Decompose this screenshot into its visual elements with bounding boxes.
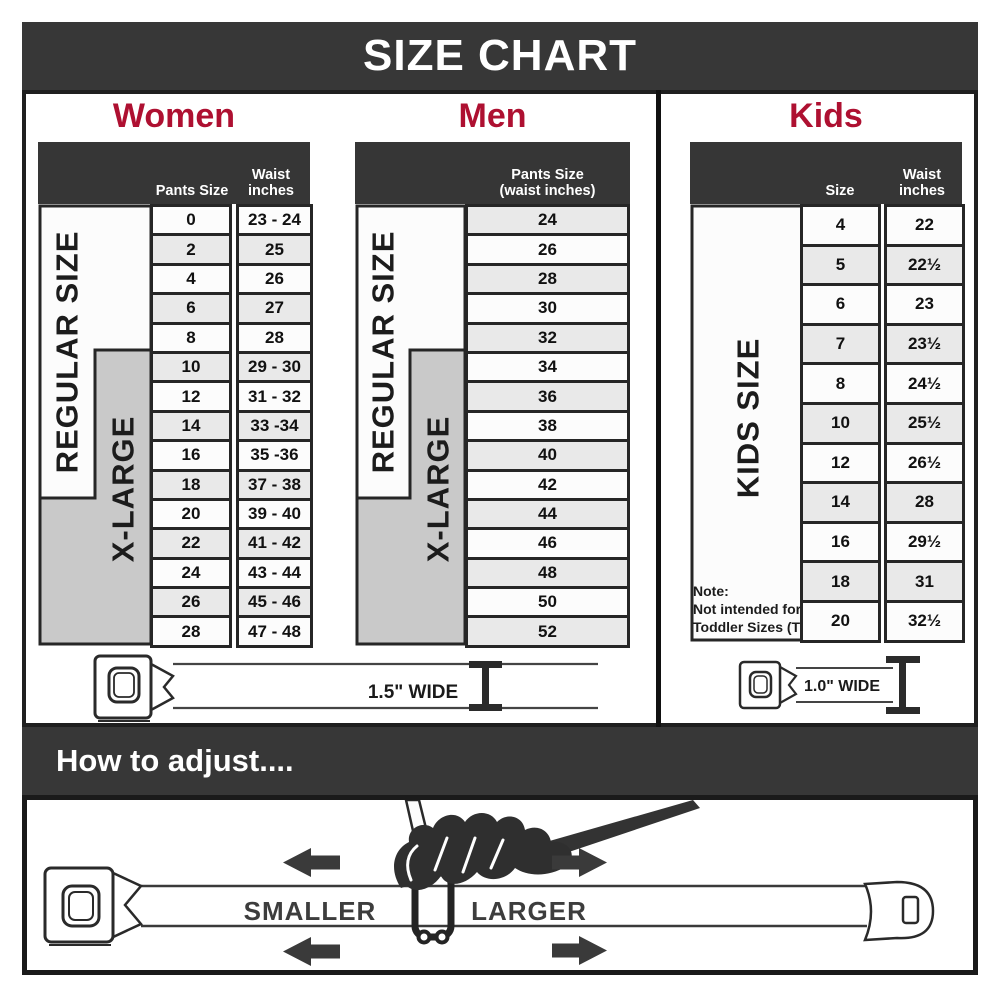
waist-cell: 22 (886, 206, 964, 246)
seatbelt-buckle-icon (45, 868, 141, 945)
left-arrow-icon (283, 848, 340, 877)
table-row: 28 47 - 48 (152, 617, 312, 646)
waist-cell: 25 (238, 235, 312, 264)
size-cell: 5 (802, 245, 880, 285)
size-cell: 18 (802, 562, 880, 602)
belt-tip (865, 882, 933, 940)
waist-cell: 43 - 44 (238, 558, 312, 587)
page-title: SIZE CHART (363, 31, 637, 81)
table-row: 7 23½ (802, 324, 964, 364)
pants-size-cell: 20 (152, 499, 231, 528)
women-regular-label: REGULAR SIZE (50, 231, 85, 474)
pants-size-cell: 46 (467, 529, 629, 558)
pants-size-cell: 0 (152, 206, 231, 235)
men-regular-label: REGULAR SIZE (366, 231, 401, 474)
seatbelt-buckle-icon (95, 656, 173, 721)
pants-size-cell: 12 (152, 382, 231, 411)
right-arrow-icon (552, 936, 607, 965)
column-gap (231, 382, 238, 411)
table-row: 8 28 (152, 323, 312, 352)
waist-cell: 25½ (886, 403, 964, 443)
adult-belt-illustration: 1.5" WIDE (38, 650, 653, 730)
pants-size-cell: 6 (152, 294, 231, 323)
waist-cell: 26 (238, 264, 312, 293)
table-row: 0 23 - 24 (152, 206, 312, 235)
pants-size-cell: 52 (467, 617, 629, 646)
men-table-header: Pants Size (waist inches) (355, 142, 630, 204)
pants-size-cell: 24 (152, 558, 231, 587)
size-cell: 14 (802, 483, 880, 523)
table-row: 12 26½ (802, 443, 964, 483)
men-heading: Men (355, 96, 630, 136)
waist-cell: 22½ (886, 245, 964, 285)
pants-size-cell: 4 (152, 264, 231, 293)
table-row: 44 (467, 499, 629, 528)
waist-cell: 33 -34 (238, 411, 312, 440)
table-row: 18 31 (802, 562, 964, 602)
women-table-header: Pants Size Waist inches (38, 142, 310, 204)
size-cell: 20 (802, 601, 880, 641)
column-gap (231, 470, 238, 499)
table-row: 22 41 - 42 (152, 529, 312, 558)
table-row: 16 35 -36 (152, 441, 312, 470)
width-marker-icon (886, 656, 920, 714)
kids-heading: Kids (690, 96, 962, 136)
waist-cell: 39 - 40 (238, 499, 312, 528)
table-row: 46 (467, 529, 629, 558)
pants-size-cell: 34 (467, 352, 629, 381)
larger-label: LARGER (471, 896, 587, 926)
women-col-waist: Waist inches (234, 167, 308, 199)
table-row: 4 26 (152, 264, 312, 293)
kids-col-size: Size (800, 183, 880, 199)
adult-belt-width-label: 1.5" WIDE (368, 682, 458, 703)
pants-size-cell: 26 (467, 235, 629, 264)
waist-cell: 28 (886, 483, 964, 523)
pants-size-cell: 26 (152, 588, 231, 617)
table-row: 14 33 -34 (152, 411, 312, 440)
size-cell: 12 (802, 443, 880, 483)
table-row: 38 (467, 411, 629, 440)
size-cell: 4 (802, 206, 880, 246)
table-row: 20 32½ (802, 601, 964, 641)
waist-cell: 41 - 42 (238, 529, 312, 558)
table-row: 26 45 - 46 (152, 588, 312, 617)
pants-size-cell: 40 (467, 441, 629, 470)
kids-panel-divider (656, 90, 661, 727)
column-gap (231, 529, 238, 558)
left-arrow-icon (283, 937, 340, 966)
waist-cell: 31 (886, 562, 964, 602)
size-cell: 16 (802, 522, 880, 562)
waist-cell: 35 -36 (238, 441, 312, 470)
column-gap (231, 235, 238, 264)
pants-size-cell: 14 (152, 411, 231, 440)
column-gap (231, 294, 238, 323)
pants-size-cell: 2 (152, 235, 231, 264)
waist-cell: 23 (886, 285, 964, 325)
kids-table-header: Size Waist inches (690, 142, 962, 204)
pants-size-cell: 28 (467, 264, 629, 293)
table-row: 42 (467, 470, 629, 499)
adjust-section-bar: How to adjust.... (22, 727, 978, 795)
pants-size-cell: 24 (467, 206, 629, 235)
table-row: 34 (467, 352, 629, 381)
table-row: 14 28 (802, 483, 964, 523)
table-row: 16 29½ (802, 522, 964, 562)
pants-size-cell: 38 (467, 411, 629, 440)
table-row: 28 (467, 264, 629, 293)
column-gap (231, 558, 238, 587)
waist-cell: 27 (238, 294, 312, 323)
pants-size-cell: 30 (467, 294, 629, 323)
men-size-category-boxes: REGULAR SIZE X-LARGE (355, 204, 467, 648)
pants-size-cell: 48 (467, 558, 629, 587)
men-size-table: 24 26 28 30 32 34 (465, 204, 630, 648)
waist-cell: 26½ (886, 443, 964, 483)
column-gap (231, 411, 238, 440)
table-row: 36 (467, 382, 629, 411)
waist-cell: 29½ (886, 522, 964, 562)
table-row: 10 25½ (802, 403, 964, 443)
women-heading: Women (38, 96, 310, 136)
table-row: 2 25 (152, 235, 312, 264)
waist-cell: 29 - 30 (238, 352, 312, 381)
waist-cell: 28 (238, 323, 312, 352)
pants-size-cell: 28 (152, 617, 231, 646)
pants-size-cell: 8 (152, 323, 231, 352)
size-cell: 7 (802, 324, 880, 364)
table-row: 18 37 - 38 (152, 470, 312, 499)
men-xlarge-label: X-LARGE (421, 416, 456, 563)
waist-cell: 23 - 24 (238, 206, 312, 235)
kids-belt-illustration: 1.0" WIDE (690, 650, 962, 730)
table-row: 40 (467, 441, 629, 470)
column-gap (231, 264, 238, 293)
column-gap (231, 441, 238, 470)
adjust-heading: How to adjust.... (56, 743, 294, 779)
pants-size-cell: 16 (152, 441, 231, 470)
table-row: 32 (467, 323, 629, 352)
waist-cell: 37 - 38 (238, 470, 312, 499)
women-size-table: 0 23 - 24 2 25 4 26 6 (150, 204, 313, 648)
table-row: 12 31 - 32 (152, 382, 312, 411)
pants-size-cell: 50 (467, 588, 629, 617)
column-gap (231, 617, 238, 646)
kids-col-waist: Waist inches (882, 167, 962, 199)
pants-size-cell: 10 (152, 352, 231, 381)
table-row: 30 (467, 294, 629, 323)
pants-size-cell: 36 (467, 382, 629, 411)
waist-cell: 23½ (886, 324, 964, 364)
title-bar: SIZE CHART (22, 22, 978, 90)
waist-cell: 31 - 32 (238, 382, 312, 411)
table-row: 24 (467, 206, 629, 235)
column-gap (231, 499, 238, 528)
pants-size-cell: 18 (152, 470, 231, 499)
table-row: 6 23 (802, 285, 964, 325)
table-row: 24 43 - 44 (152, 558, 312, 587)
smaller-label: SMALLER (244, 896, 377, 926)
women-col-pants-size: Pants Size (152, 183, 232, 199)
pants-size-cell: 44 (467, 499, 629, 528)
waist-cell: 47 - 48 (238, 617, 312, 646)
size-cell: 8 (802, 364, 880, 404)
kids-size-label: KIDS SIZE (731, 338, 766, 499)
column-gap (231, 588, 238, 617)
table-row: 50 (467, 588, 629, 617)
waist-cell: 24½ (886, 364, 964, 404)
kids-belt-width-label: 1.0" WIDE (804, 678, 880, 695)
table-row: 20 39 - 40 (152, 499, 312, 528)
column-gap (231, 323, 238, 352)
column-gap (231, 352, 238, 381)
waist-cell: 32½ (886, 601, 964, 641)
women-size-category-boxes: REGULAR SIZE X-LARGE (38, 204, 153, 648)
men-col-pants-size: Pants Size (waist inches) (467, 167, 628, 199)
size-cell: 6 (802, 285, 880, 325)
width-marker-icon (469, 661, 502, 711)
table-row: 4 22 (802, 206, 964, 246)
table-row: 26 (467, 235, 629, 264)
kids-size-table: 4 22 5 22½ 6 23 7 (800, 204, 965, 643)
pants-size-cell: 22 (152, 529, 231, 558)
size-cell: 10 (802, 403, 880, 443)
table-row: 10 29 - 30 (152, 352, 312, 381)
size-chart-page: SIZE CHART Women Men Kids Pants Size Wai… (0, 0, 1000, 1000)
pants-size-cell: 42 (467, 470, 629, 499)
adjust-belt-illustration: SMALLER LARGER (27, 800, 973, 970)
waist-cell: 45 - 46 (238, 588, 312, 617)
table-row: 5 22½ (802, 245, 964, 285)
table-row: 52 (467, 617, 629, 646)
women-xlarge-label: X-LARGE (106, 416, 141, 563)
table-row: 6 27 (152, 294, 312, 323)
seatbelt-buckle-icon (740, 662, 796, 708)
table-row: 48 (467, 558, 629, 587)
column-gap (231, 206, 238, 235)
table-row: 8 24½ (802, 364, 964, 404)
pants-size-cell: 32 (467, 323, 629, 352)
